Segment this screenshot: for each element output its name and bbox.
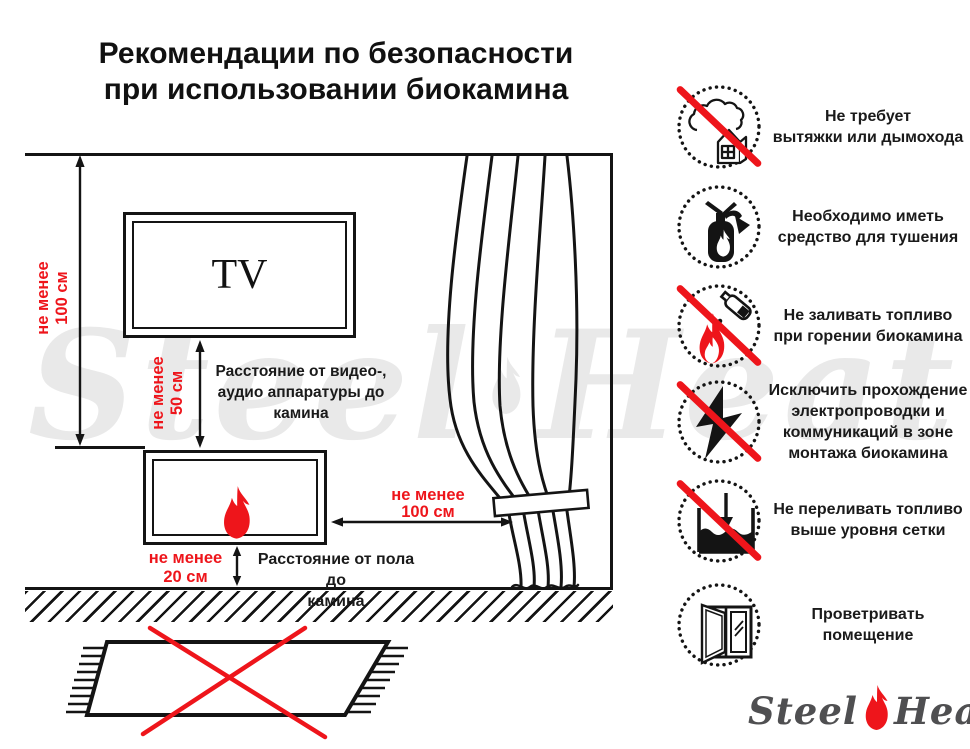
no-overfill-icon [677,479,761,563]
biofireplace [143,450,327,545]
extinguisher-icon [677,185,761,269]
label-curtain-clearance: не менее 100 см [353,487,503,521]
no-chimney-icon [677,85,761,169]
logo-word-heat: Heat [894,689,970,733]
carpet-forbidden [52,612,417,747]
no-wiring-icon [677,380,761,464]
rule-text-no-wiring: Исключить прохождение электропроводки и … [762,380,970,464]
logo-word-steel: Steel [748,689,858,733]
rule-text-ventilate: Проветривать помещение [762,604,970,646]
rule-text-no-overfill: Не переливать топливо выше уровня сетки [762,499,970,541]
logo-flame-icon [861,684,891,732]
label-av-clearance: не менее 50 см [149,333,195,453]
label-floor-clearance: не менее 20 см [138,549,233,587]
safety-poster: Steel Heat Рекомендации по безопасности … [0,0,970,749]
tv: TV [123,212,356,338]
rule-text-no-chimney: Не требует вытяжки или дымохода [762,106,970,148]
curtain-tieback [493,490,588,516]
brand-logo: Steel Heat [748,684,970,738]
shelf-line [55,446,145,449]
rule-text-no-refuel: Не заливать топливо при горении биокамин… [762,305,970,347]
flame-icon [218,485,254,541]
page-title: Рекомендации по безопасности при использ… [30,36,642,108]
tv-label: TV [126,215,353,335]
note-av-distance: Расстояние от видео-, аудио аппаратуры д… [206,361,396,424]
no-refuel-while-burning-icon [677,284,761,368]
note-floor-distance: Расстояние от пола до камина [246,549,426,612]
ventilate-icon [677,583,761,667]
rule-text-extinguisher: Необходимо иметь средство для тушения [762,206,970,248]
label-wall-clearance: не менее 100 см [34,233,80,363]
